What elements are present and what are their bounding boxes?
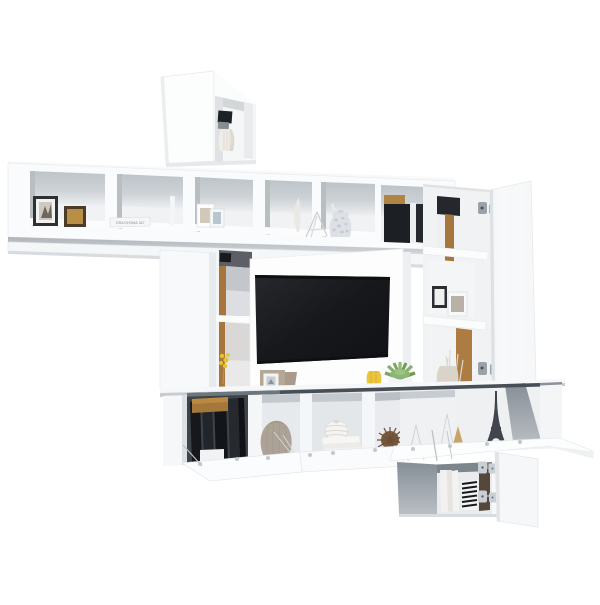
svg-text:DRA DHOMA 347: DRA DHOMA 347: [116, 221, 145, 225]
